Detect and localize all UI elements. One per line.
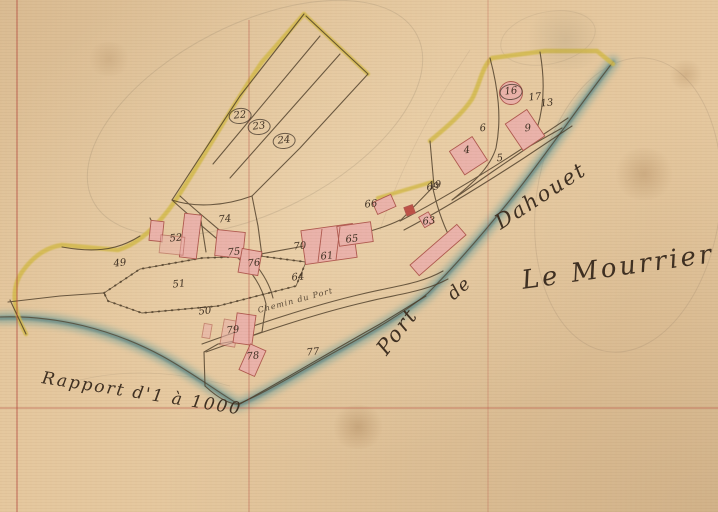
parcel-number: 70 <box>293 241 307 252</box>
parcel-number: 13 <box>540 98 554 109</box>
parcel-number: 49 <box>113 258 127 269</box>
parcel-number: 75 <box>227 247 241 258</box>
parcel-number: 74 <box>218 214 232 225</box>
parcel-number: 64 <box>291 272 305 283</box>
parcel-number: 76 <box>247 258 261 269</box>
parcel-number: 52 <box>169 233 183 244</box>
parcel-number: 65 <box>345 234 359 245</box>
parcel-numbers-layer: 2223247452757651495070616564666963797877… <box>0 0 718 512</box>
parcel-number: 69 <box>426 182 440 193</box>
parcel-number: 77 <box>306 347 320 358</box>
parcel-number: 66 <box>364 199 378 210</box>
parcel-number: 5 <box>496 154 503 165</box>
parcel-number: 24 <box>272 132 296 150</box>
parcel-number: 4 <box>463 146 470 157</box>
parcel-number: 19 <box>428 180 442 191</box>
parcel-number: 51 <box>172 279 186 290</box>
parcel-number: 61 <box>320 251 334 262</box>
parcel-number: 6 <box>479 124 486 135</box>
cadastral-map: Port de Dahouet Le Mourrier Rapport d'1 … <box>0 0 718 512</box>
parcel-number: 79 <box>226 325 240 336</box>
parcel-number: 63 <box>422 216 436 227</box>
parcel-number: 23 <box>247 118 271 136</box>
parcel-number: 22 <box>228 107 252 125</box>
parcel-number: 50 <box>198 306 212 317</box>
parcel-number: 9 <box>524 124 531 135</box>
parcel-number: 16 <box>499 83 523 101</box>
parcel-number: 17 <box>528 92 542 103</box>
parcel-number: 78 <box>246 351 260 362</box>
